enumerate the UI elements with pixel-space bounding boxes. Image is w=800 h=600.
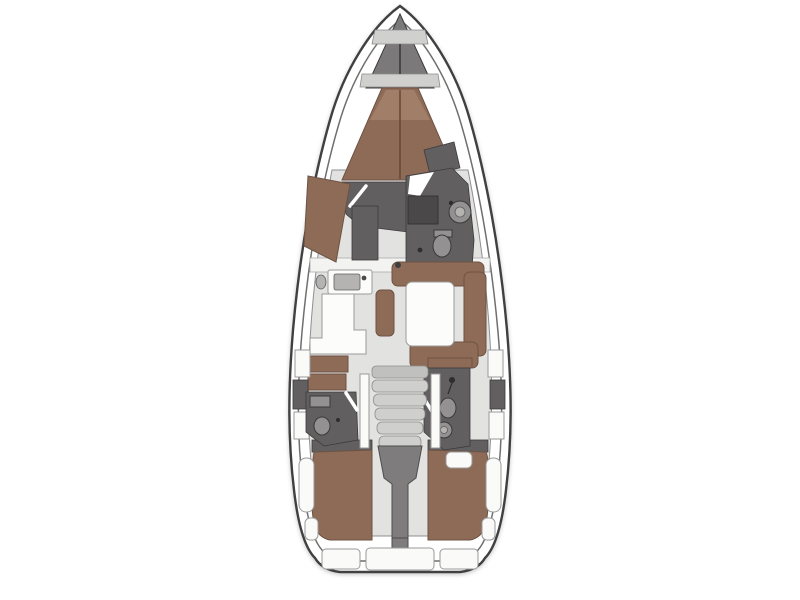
starboard-cockpit-bench [486, 458, 501, 512]
port-aft-head-sink [310, 396, 330, 407]
companionway-step-1 [372, 380, 428, 392]
companionway-wall-starboard [431, 374, 440, 448]
companionway-step-4 [377, 422, 423, 434]
corridor-wardrobe [352, 206, 378, 260]
starboard-locker-1 [488, 350, 503, 377]
port-aft-head-toilet [314, 417, 330, 435]
companionway-step-3 [375, 408, 425, 420]
dinette-table [406, 282, 454, 346]
companionway-step-2 [374, 394, 427, 406]
starboard-locker-3 [489, 412, 504, 439]
forward-head-drain [418, 248, 423, 253]
transom [322, 548, 478, 570]
port-stern-tab [305, 518, 318, 540]
starboard-head-shelf [428, 358, 472, 368]
starboard-aft-head-sink-bowl [441, 427, 448, 434]
galley-faucet [362, 276, 367, 281]
engine-centre-strip [392, 538, 408, 548]
forward-head-faucet [449, 201, 453, 205]
chart-seat [306, 356, 348, 372]
galley-sink-bowl [334, 274, 360, 290]
starboard-stern-tab [482, 518, 495, 540]
anchor-locker-band-aft [360, 74, 440, 87]
dinette-pouf [376, 290, 394, 336]
starboard-aft-head-toilet [440, 398, 456, 418]
starboard-locker-2 [490, 380, 505, 409]
port-locker-1 [295, 350, 310, 377]
galley-stove-pot [316, 275, 326, 289]
companionway-wall-port [360, 374, 369, 448]
forward-head-cabinet [408, 196, 438, 224]
swim-platform-port [322, 549, 360, 569]
anchor-locker-band-forward [372, 30, 428, 44]
forward-head-sink-bowl [455, 207, 465, 217]
mast-step [395, 262, 401, 268]
port-aft-head [306, 392, 358, 446]
starboard-head-shower [449, 377, 455, 383]
yacht-floor-plan [0, 0, 800, 600]
swim-platform-centre [366, 548, 434, 570]
canvas [0, 0, 800, 600]
swim-platform-starboard [440, 549, 478, 569]
port-aft-berth [311, 450, 372, 540]
port-aft-head-drain [336, 418, 340, 422]
starboard-aft-seat [446, 452, 472, 468]
forward-head [406, 168, 474, 268]
companionway-landing [372, 366, 428, 378]
forward-head-toilet [433, 235, 451, 257]
port-cockpit-bench [299, 458, 314, 512]
chart-seat-lower [308, 374, 346, 390]
